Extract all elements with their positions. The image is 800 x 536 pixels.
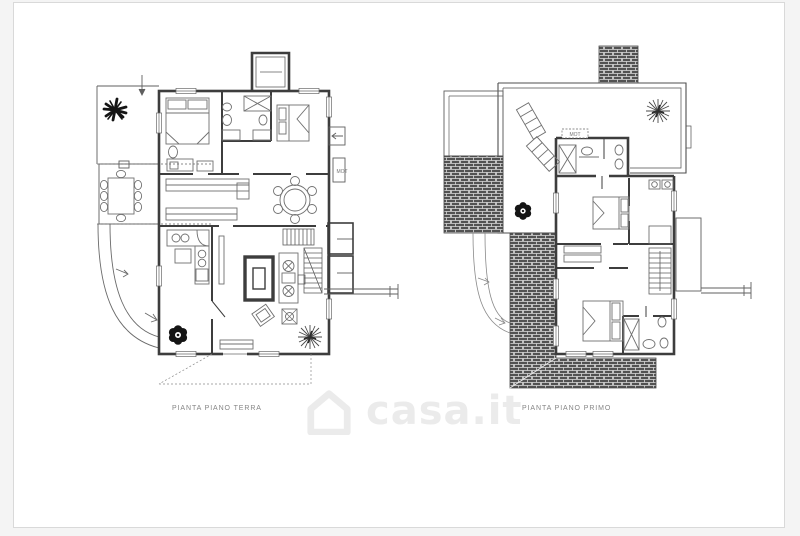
dining-table-outdoor [100, 170, 141, 221]
mot-annotation: MOT [562, 129, 588, 138]
corridor-wardrobes [166, 179, 249, 220]
corridor-wardrobes [564, 246, 601, 262]
bench [220, 340, 253, 349]
sofa [279, 253, 298, 303]
roof-projection-dashed [159, 354, 311, 384]
stairs [649, 226, 671, 294]
plant-icon [169, 325, 187, 345]
lounge-chair [526, 137, 559, 172]
curved-ramp [98, 224, 159, 348]
wardrobe-icon [244, 96, 271, 111]
ground-floor-caption: PIANTA PIANO TERRA [172, 405, 262, 412]
balcony-railing [324, 284, 398, 299]
first-floor-caption: PIANTA PIANO PRIMO [522, 405, 611, 412]
bathroom-fixtures [222, 103, 271, 140]
rug-table [245, 257, 273, 300]
bathroom-fixtures [624, 317, 668, 350]
mot-label: MOT [569, 132, 580, 138]
mot-label: MOT [336, 169, 347, 175]
double-bed [583, 301, 623, 341]
plant-icon [515, 202, 531, 220]
plant-icon [104, 99, 126, 120]
double-bed [593, 197, 629, 229]
side-table [282, 309, 297, 324]
plant-icon [646, 99, 670, 123]
windows [553, 191, 676, 357]
armchair [252, 304, 275, 326]
kitchen-counter [167, 230, 224, 284]
laundry-fixtures [649, 180, 673, 189]
screenshot-root: MOT [0, 0, 800, 536]
curved-ramp [473, 233, 510, 333]
furniture [166, 96, 317, 349]
garden-terrace [97, 75, 212, 224]
window-protrusion [329, 127, 345, 145]
first-floor-plan: MOT [444, 46, 751, 388]
dining-table [274, 177, 317, 224]
bathroom-fixtures [559, 145, 623, 173]
ground-floor-plan: MOT [97, 53, 398, 384]
laundry-fixtures [167, 146, 213, 171]
balcony-railing [676, 218, 751, 299]
chimney [599, 46, 638, 83]
photo-frame: MOT [13, 2, 785, 528]
porch [256, 57, 285, 87]
mot-annotation: MOT [333, 158, 348, 182]
double-bed [166, 98, 209, 144]
floor-plan-drawing: MOT [14, 3, 786, 527]
plant-icon [298, 325, 322, 349]
double-bed [277, 105, 309, 141]
lounge-chair [516, 103, 545, 139]
